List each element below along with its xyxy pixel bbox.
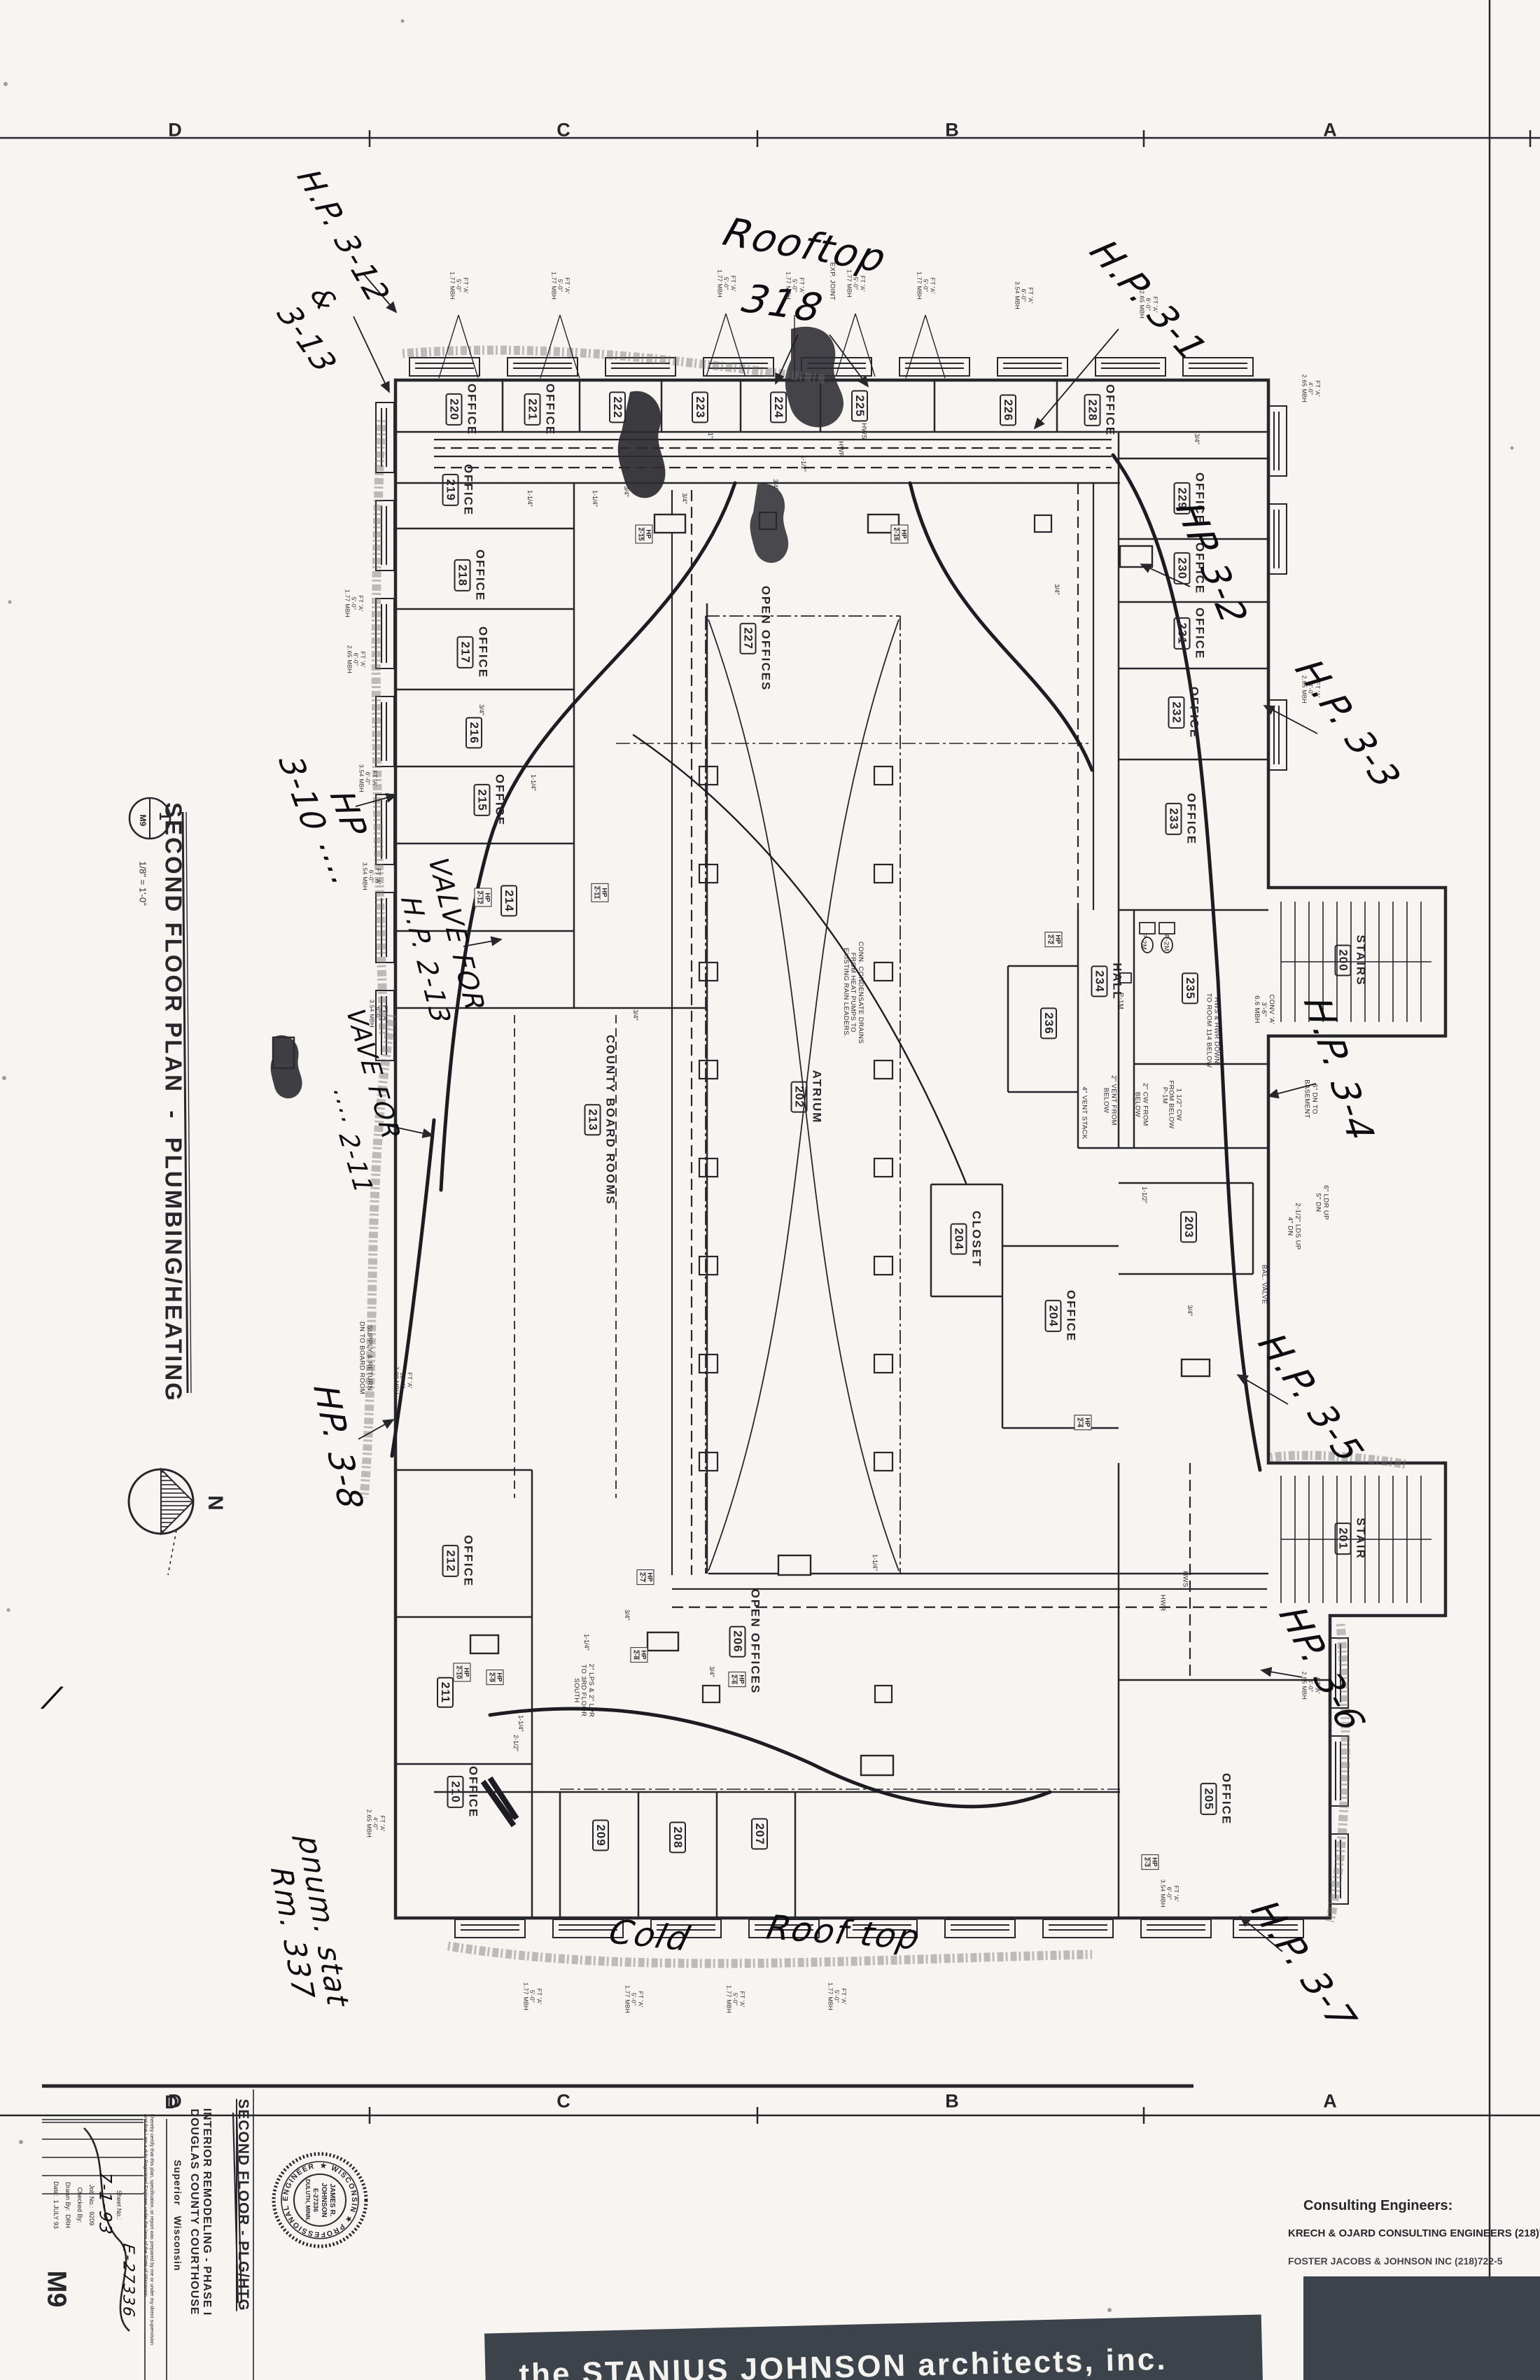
project-line-1: INTERIOR REMODELING - PHASE I — [200, 2108, 213, 2316]
titleblock-field: Date: 1 JULY 93 — [52, 2181, 59, 2229]
pipe-size-label: 1" — [707, 433, 714, 438]
room-label: OFFICE218 — [454, 549, 487, 601]
stamp-reg: E-27336 — [312, 2188, 319, 2212]
fin-tube-label: FT 'A' 5'-0" 1.77 MBH — [846, 269, 866, 297]
north-label: N — [204, 1495, 227, 1511]
room-label: OFFICE217 — [457, 626, 490, 678]
room-label: 226 — [1000, 394, 1016, 426]
certification-text: I hereby certify that this plan, specifi… — [143, 2114, 155, 2345]
stamp-city: DULUTH, MINN. — [304, 2179, 311, 2221]
fin-tube-label: FT 'A' 4'-0" 2.65 MBH — [365, 1809, 386, 1837]
scanned-drawing-sheet: 1 M9 N ★ WISCONSIN ★ PROFES — [0, 0, 1540, 2380]
hp-equipment-tag: HP2-2 — [1045, 932, 1063, 947]
pipe-size-label: 2-1/2" — [512, 1735, 519, 1751]
pipe-size-label: 1-1/4" — [530, 774, 537, 791]
room-label: 224 — [770, 391, 787, 423]
room-label: OFFICE210 — [447, 1766, 480, 1818]
freehand-piping — [392, 455, 1260, 1807]
room-label: ATRIUM202 — [791, 1070, 824, 1124]
pipe-size-label: 1-1/4" — [583, 1634, 590, 1651]
room-label: STAIRS200 — [1335, 934, 1368, 986]
note-label: 2-1/2" LDS UP 4" DN — [1286, 1203, 1301, 1249]
note-label: 6" LDR UP 5" DN — [1314, 1185, 1329, 1220]
fin-tube-label: FT 'A' 5'-0" 1.77 MBH — [916, 272, 936, 300]
fin-tube-label: FT 'A' 5'-0" 1.77 MBH — [550, 272, 570, 300]
room-label: OFFICE231 — [1174, 608, 1207, 659]
hp-equipment-tag: HP2-3 — [1142, 1854, 1159, 1870]
titleblock-field: Drawn By: DRH — [64, 2182, 71, 2228]
note-label: SUPPLY & RETURN DN TO BOARD ROOM — [358, 1322, 372, 1394]
note-label: CONN. CONDENSATE DRAINS FROM HEAT PUMPS … — [841, 941, 864, 1044]
handwritten-annotation: 7-1-93 — [96, 2171, 115, 2236]
room-label: OFFICE215 — [474, 774, 507, 826]
handwritten-annotation: Cold — [605, 1914, 694, 1959]
drawing-scale: 1/8" = 1'-0" — [137, 861, 148, 905]
pipe-size-label: 1-1/4" — [517, 1715, 524, 1732]
fin-tube-label: FT 'A' 5'-0" 1.77 MBH — [785, 272, 805, 300]
grid-letter: A — [1323, 120, 1337, 141]
room-label: 225 — [851, 390, 868, 421]
room-label: OFFICE233 — [1165, 793, 1198, 845]
room-label: COUNTY BOARD ROOMS213 — [584, 1035, 617, 1205]
pipe-size-label: 3/4" — [1186, 1305, 1193, 1316]
pipe-size-label: 3/4" — [624, 1609, 631, 1620]
room-label: 214 — [500, 885, 517, 916]
room-label: 208 — [669, 1821, 686, 1853]
fin-tube-label: FT 'A' 5'-0" 1.77 MBH — [725, 1985, 745, 2013]
room-label: 207 — [751, 1818, 768, 1849]
titleblock-field: Checked By: — [76, 2187, 83, 2222]
titleblock-field: Job No.: 9209 — [88, 2185, 95, 2226]
grid-letter: D — [168, 120, 182, 141]
consulting-engineers-block — [1303, 2276, 1540, 2380]
sheet-title: SECOND FLOOR - PLG/HTG — [234, 2099, 251, 2311]
hp-equipment-tag: HP2-9 — [486, 1669, 504, 1685]
note-label: HWS — [860, 423, 867, 439]
pipe-size-label: 3/4" — [623, 486, 630, 497]
hp-equipment-tag: HP2-6 — [729, 1672, 746, 1687]
room-label: 203 — [1180, 1211, 1197, 1242]
pipe-size-label: 3/4" — [1053, 584, 1060, 595]
note-label: CONV 'A' 3'-6" 6.6 MBH — [1252, 994, 1275, 1024]
room-label: 211 — [437, 1677, 454, 1708]
fin-tube-label: FT 'A' 6'-0" 3.54 MBH — [1014, 281, 1034, 309]
note-label: HWR — [836, 441, 844, 458]
fin-tube-label: FT 'A' 5'-0" 1.77 MBH — [827, 1982, 847, 2010]
hp-equipment-tag: HP2-11 — [591, 883, 609, 902]
project-line-3: Superior Wisconsin — [172, 2159, 183, 2271]
grid-letter: C — [556, 2091, 570, 2113]
fin-tube-label: FT 'A' 6'-0" 2.65 MBH — [1138, 290, 1158, 318]
room-label: OPEN OFFICES227 — [740, 586, 773, 692]
note-label: 4" VENT STACK — [1080, 1086, 1088, 1139]
room-label: OFFICE219 — [442, 464, 475, 516]
hp-equipment-tag: HP2-7 — [637, 1569, 654, 1585]
room-label: CLOSET204 — [951, 1211, 983, 1268]
pipe-size-label: 3/4" — [478, 704, 485, 715]
note-label: EXP. JOINT — [828, 262, 836, 301]
consulting-line-2: FOSTER JACOBS & JOHNSON INC (218)722-5 — [1288, 2255, 1540, 2267]
room-label: 209 — [592, 1819, 609, 1851]
floor-plan-linework: 1 M9 N ★ WISCONSIN ★ PROFES — [0, 0, 1540, 2380]
stamp-name-1: JAMES R. — [328, 2183, 336, 2216]
room-label: OFFICE221 — [524, 384, 557, 435]
project-line-2: DOUGLAS COUNTY COURTHOUSE — [188, 2109, 200, 2316]
pipe-size-label: 3/4" — [681, 493, 688, 504]
plumbing-fixtures — [1120, 923, 1175, 983]
fin-tube-label: FT 'A' 6'-0" 3.54 MBH — [361, 862, 381, 890]
fin-tube-label: FT 'A' 5'-0" 1.77 MBH — [522, 1982, 542, 2010]
pipe-size-label: 1-1/2" — [1141, 1186, 1148, 1203]
room-label: OFFICE232 — [1168, 687, 1201, 738]
room-label: 223 — [692, 391, 708, 423]
room-label: 235 — [1182, 972, 1198, 1004]
fin-tube-label: FT 'A' 5'-0" 1.77 MBH — [624, 1985, 644, 2013]
grid-letter: A — [1323, 2091, 1337, 2113]
hp-equipment-tag: HP2-8 — [631, 1647, 648, 1662]
north-arrow: N — [129, 1469, 227, 1575]
note-label: HWS — [1181, 1571, 1189, 1587]
hp-equipment-tag: HP2-12 — [475, 888, 492, 906]
fin-tube-label: FT 'A' 4'-0" 2.65 MBH — [1301, 675, 1321, 703]
fin-tube-label: FT 'A' 12'-0" 7.08 MBH — [393, 1366, 413, 1394]
titleblock-field: Sheet No.: — [115, 2190, 122, 2220]
pipe-size-label: 3/4" — [632, 1009, 639, 1021]
sheet-number-big: M9 — [41, 2271, 71, 2308]
room-label: OFFICE205 — [1200, 1773, 1233, 1825]
pipe-size-label: 1-1/2" — [800, 455, 807, 472]
fin-tube-label: FT 'A' 5'-0" 1.77 MBH — [449, 272, 469, 300]
fin-tube-label: FT 'A' 6'-0" 2.65 MBH — [1301, 1672, 1321, 1700]
grid-letter: C — [556, 120, 570, 141]
hp-equipment-tag: HP2-10 — [454, 1662, 471, 1681]
fin-tube-label: FT 'A' 6'-0" 3.54 MBH — [1159, 1879, 1179, 1907]
hp-equipment-tag: HP2-4 — [1074, 1415, 1092, 1430]
grid-letter: B — [945, 2091, 959, 2113]
note-label: P-2M — [1162, 934, 1170, 951]
hp-equipment-tag: HP2-16 — [891, 524, 909, 543]
pe-stamp: ★ WISCONSIN ★ PROFESSIONAL ENGINEER JAME… — [274, 2154, 366, 2246]
heat-pump-units — [273, 514, 1210, 1775]
note-label: HWR — [1158, 1595, 1166, 1611]
note-label: 2" VENT FROM BELOW — [1102, 1075, 1116, 1126]
note-label: BAL. VALVE — [1260, 1265, 1268, 1304]
fin-tube-label: FT 'A' 5'-0" 1.77 MBH — [716, 269, 736, 297]
room-label: 222 — [609, 391, 626, 423]
note-label: HWS & HWR DOWN TO ROOM 114 BELOW — [1205, 993, 1219, 1068]
note-label: 6" DN TO BASEMENT — [1303, 1079, 1317, 1118]
fin-tube-label: FT 'A' 6'-0" 3.54 MBH — [368, 1000, 388, 1028]
room-label: OFFICE204 — [1045, 1290, 1078, 1342]
stamp-name-2: JOHNSON — [320, 2183, 328, 2217]
note-label: P-2M — [1140, 933, 1147, 950]
consulting-line-1: KRECH & OJARD CONSULTING ENGINEERS (218)… — [1288, 2227, 1540, 2239]
pipe-size-label: 3/4" — [772, 479, 779, 490]
grid-letter: B — [945, 120, 959, 141]
room-label: OFFICE228 — [1084, 384, 1117, 436]
pipe-size-label: 3/4" — [1193, 433, 1200, 444]
room-label: STAIR201 — [1335, 1518, 1368, 1560]
pipe-size-label: 1-1/4" — [871, 1554, 878, 1571]
pipe-size-label: 1-1/4" — [526, 490, 533, 507]
note-label: 2" CW FROM BELOW — [1133, 1083, 1148, 1126]
pipe-size-label: 1-1/4" — [591, 490, 598, 507]
note-label: P-1M — [1161, 1087, 1168, 1104]
note-label: 2" LPS & 2" LPR TO 3RD FLOOR SOUTH — [572, 1664, 594, 1718]
fin-tube-label: FT 'A' 6'-0" 2.65 MBH — [346, 645, 366, 673]
grid-letter: D — [168, 2091, 182, 2113]
fin-tube-label: FT 'A' 5'-0" 1.77 MBH — [344, 589, 364, 617]
consulting-label: Consulting Engineers: — [1303, 2198, 1452, 2214]
room-label: OFFICE212 — [442, 1535, 475, 1587]
note-label: P-1M — [1116, 993, 1124, 1009]
hp-equipment-tag: HP2-15 — [636, 524, 653, 543]
detail-sheet: M9 — [138, 815, 148, 827]
drawing-title: SECOND FLOOR PLAN - PLUMBING/HEATING — [160, 802, 186, 1403]
room-label: OFFICE220 — [446, 384, 479, 435]
note-label: 1 1/2" CW FROM BELOW — [1167, 1081, 1182, 1129]
fin-tube-label: FT 'A' 6'-0" 3.54 MBH — [358, 764, 378, 792]
handwritten-annotation: E-27336 — [119, 2242, 136, 2318]
room-label: 236 — [1040, 1007, 1057, 1039]
building-outline — [395, 380, 1445, 1918]
room-label: 216 — [465, 717, 482, 748]
fin-tube-label: FT 'A' 4'-0" 2.65 MBH — [1301, 374, 1321, 402]
pipe-size-label: 3/4" — [708, 1666, 715, 1677]
